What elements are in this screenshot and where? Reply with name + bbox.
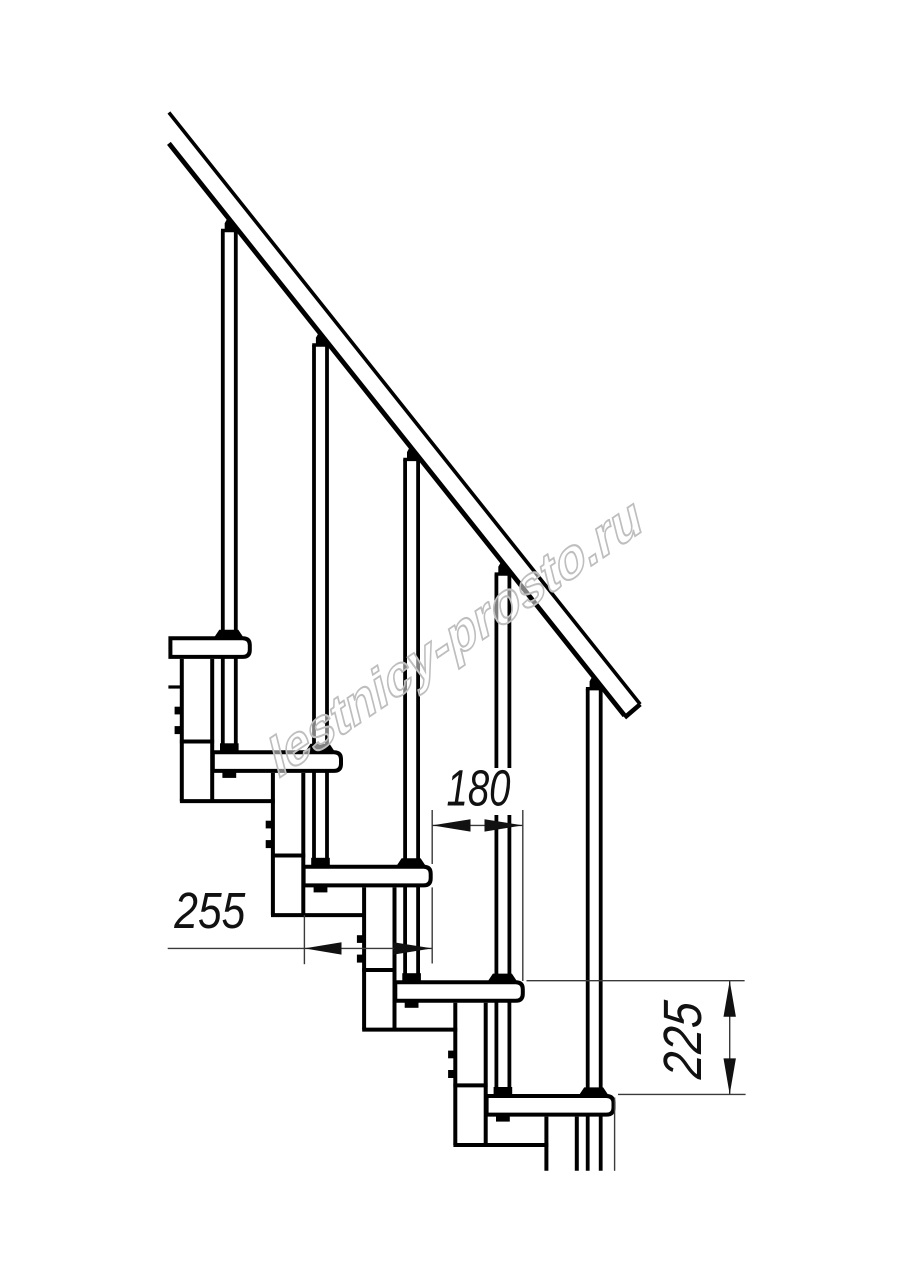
svg-text:180: 180 <box>447 760 511 817</box>
svg-text:225: 225 <box>653 998 713 1082</box>
svg-text:255: 255 <box>173 882 245 939</box>
